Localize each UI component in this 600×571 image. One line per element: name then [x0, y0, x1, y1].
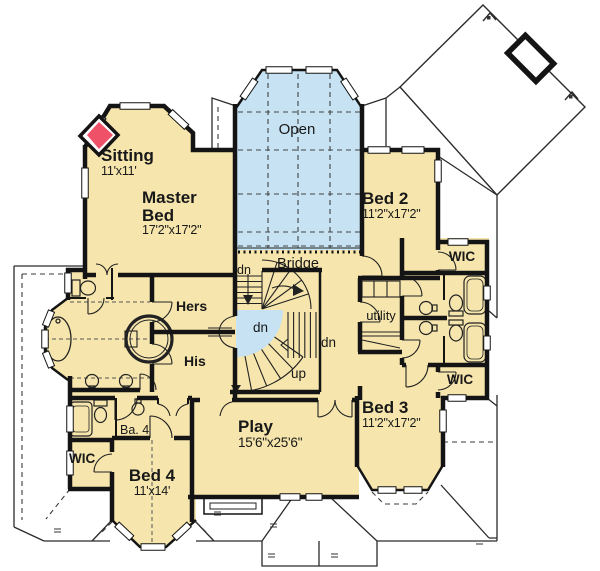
window-seat — [204, 497, 262, 514]
room-label-hers: Hers — [176, 299, 207, 316]
room-label-open: Open — [272, 122, 322, 139]
room-dims: 15'6"x25'6" — [238, 436, 302, 450]
room-name: His — [184, 353, 206, 369]
stair-label-dn-lower: dn — [321, 335, 336, 352]
room-name: Ba. 4 — [120, 423, 149, 437]
room-label-ba4: Ba. 4 — [120, 422, 149, 439]
room-name: WIC — [447, 372, 473, 387]
room-name: Sitting — [101, 147, 154, 165]
room-label-wic-bed2: WIC — [442, 249, 482, 266]
room-label-bed4: Bed 4 11'x14' — [121, 467, 183, 498]
room-dims: 11'2"x17'2" — [362, 417, 420, 430]
room-label-master: Master Bed 17'2"x17'2" — [142, 189, 208, 237]
room-label-utility: utility — [356, 308, 406, 325]
floor-plan-drawing — [0, 0, 600, 571]
room-dims: 11'x11' — [101, 165, 154, 178]
room-label-wic-bed4: WIC — [69, 451, 95, 468]
room-name: WIC — [69, 451, 95, 466]
floor-plan: Sitting 11'x11' Master Bed 17'2"x17'2" O… — [0, 0, 600, 571]
room-dims: 11'2"x17'2" — [362, 208, 420, 221]
room-label-bed2: Bed 2 11'2"x17'2" — [362, 190, 420, 221]
room-name: Open — [279, 121, 316, 138]
room-name: Hers — [176, 298, 207, 314]
room-name: Bed 4 — [121, 467, 183, 485]
room-label-play: Play 15'6"x25'6" — [238, 418, 302, 450]
room-name: WIC — [449, 249, 475, 264]
room-label-wic-bed3: WIC — [440, 372, 480, 389]
room-name: Bed 3 — [362, 399, 420, 417]
room-label-bridge: Bridge — [270, 256, 326, 273]
room-dims: 17'2"x17'2" — [142, 224, 208, 237]
room-name: Play — [238, 418, 302, 436]
room-label-bed3: Bed 3 11'2"x17'2" — [362, 399, 420, 430]
room-name: utility — [366, 308, 396, 323]
room-name: Master Bed — [142, 189, 208, 224]
open-to-below-area — [237, 71, 362, 250]
room-label-sitting: Sitting 11'x11' — [101, 147, 154, 178]
room-dims: 11'x14' — [121, 485, 183, 498]
room-name: Bridge — [277, 256, 319, 272]
room-label-his: His — [184, 354, 206, 371]
stair-label-dn-upper: dn — [237, 262, 251, 279]
room-name: Bed 2 — [362, 190, 420, 208]
stair-label-up: up — [291, 366, 306, 383]
stair-label-dn-landing: dn — [253, 320, 268, 337]
